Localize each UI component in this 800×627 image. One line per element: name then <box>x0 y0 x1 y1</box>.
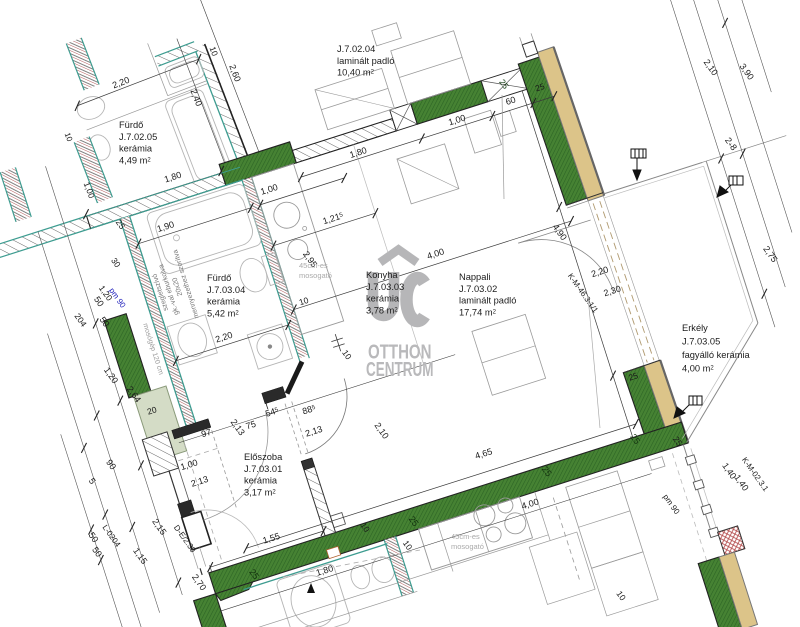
svg-text:mosogató: mosogató <box>451 542 484 551</box>
svg-text:kerámia: kerámia <box>366 294 400 304</box>
svg-text:17,74 m2: 17,74 m2 <box>459 307 497 317</box>
svg-text:Erkély: Erkély <box>682 323 708 333</box>
svg-text:J.7.03.01: J.7.03.01 <box>244 464 282 474</box>
svg-text:mosogató: mosogató <box>299 271 332 280</box>
svg-text:45cm-es: 45cm-es <box>299 261 328 270</box>
svg-text:kerámia: kerámia <box>207 297 241 307</box>
svg-text:Nappali: Nappali <box>459 272 491 282</box>
svg-text:J.7.03.03: J.7.03.03 <box>366 282 404 292</box>
svg-text:fagyálló kerámia: fagyálló kerámia <box>682 350 751 360</box>
svg-text:4,00 m2: 4,00 m2 <box>682 364 714 374</box>
svg-text:laminált padló: laminált padló <box>337 56 394 66</box>
svg-text:45cm-es: 45cm-es <box>451 532 480 541</box>
svg-text:5,42 m2: 5,42 m2 <box>207 308 239 318</box>
svg-text:J.7.03.05: J.7.03.05 <box>682 337 720 347</box>
svg-text:J.7.02.05: J.7.02.05 <box>119 132 157 142</box>
svg-text:kerámia: kerámia <box>244 476 278 486</box>
svg-text:J.7.03.04: J.7.03.04 <box>207 285 245 295</box>
svg-text:laminált padló: laminált padló <box>459 296 516 306</box>
svg-text:J.7.02.04: J.7.02.04 <box>337 44 375 54</box>
svg-text:Fürdő: Fürdő <box>207 273 231 283</box>
svg-text:3,78 m2: 3,78 m2 <box>366 305 398 315</box>
svg-text:Előszoba: Előszoba <box>244 452 283 462</box>
svg-text:4,49 m2: 4,49 m2 <box>119 155 151 165</box>
svg-text:10,40 m2: 10,40 m2 <box>337 68 375 78</box>
svg-text:3,17 m2: 3,17 m2 <box>244 487 276 497</box>
svg-text:Konyha: Konyha <box>366 270 398 280</box>
svg-text:Fürdő: Fürdő <box>119 120 143 130</box>
svg-text:CENTRUM: CENTRUM <box>366 358 434 381</box>
svg-text:kerámia: kerámia <box>119 144 153 154</box>
svg-text:J.7.03.02: J.7.03.02 <box>459 284 497 294</box>
